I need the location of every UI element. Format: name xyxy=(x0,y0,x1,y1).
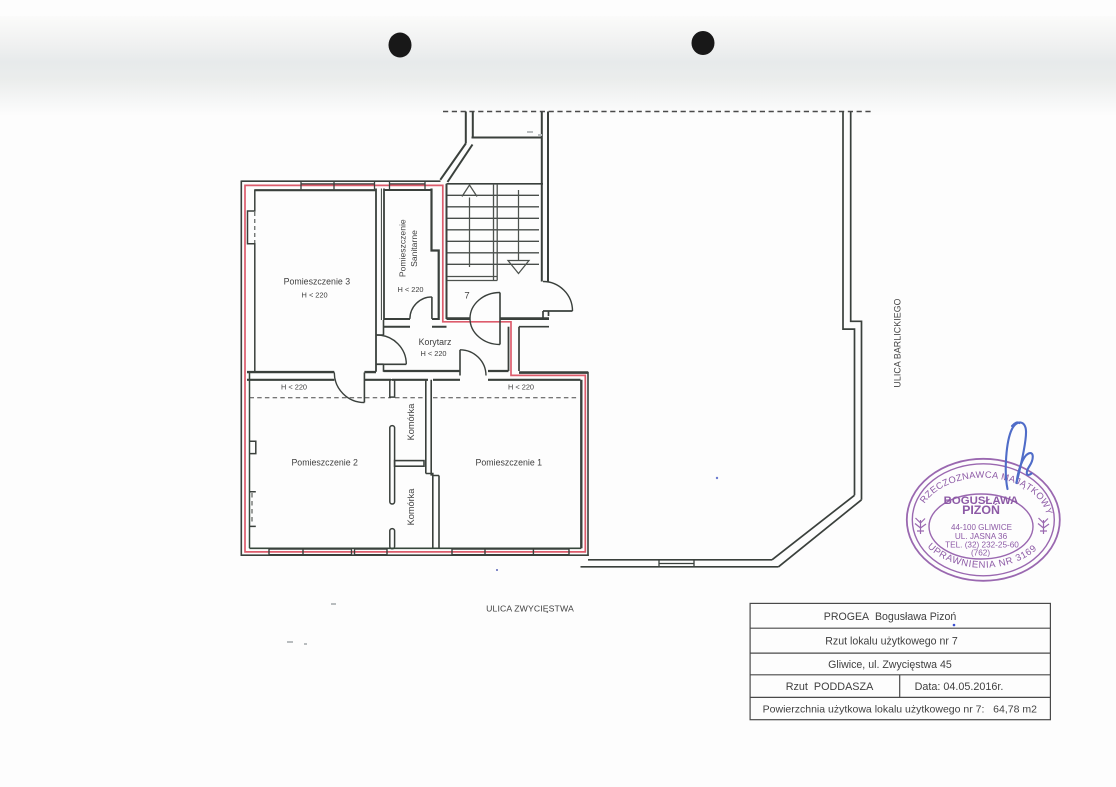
svg-text:Gliwice, ul. Zwycięstwa 45: Gliwice, ul. Zwycięstwa 45 xyxy=(828,659,952,671)
svg-text:Sanitarne: Sanitarne xyxy=(409,230,419,267)
svg-text:Komórka: Komórka xyxy=(406,488,416,526)
svg-text:Pomieszczenie: Pomieszczenie xyxy=(397,219,407,277)
svg-text:ULICA ZWYCIĘSTWA: ULICA ZWYCIĘSTWA xyxy=(486,604,574,614)
svg-text:44-100 GLIWICE: 44-100 GLIWICE xyxy=(951,523,1012,532)
svg-text:Pomieszczenie 3: Pomieszczenie 3 xyxy=(284,276,351,286)
svg-text:7: 7 xyxy=(464,291,469,302)
svg-text:H < 220: H < 220 xyxy=(281,383,307,392)
svg-text:Rzut lokalu użytkowego nr 7: Rzut lokalu użytkowego nr 7 xyxy=(825,636,958,648)
svg-text:Korytarz: Korytarz xyxy=(419,337,452,347)
svg-text:H < 220: H < 220 xyxy=(302,290,328,299)
svg-text:H < 220: H < 220 xyxy=(420,349,446,358)
svg-text:PIZOŃ: PIZOŃ xyxy=(962,502,1000,517)
svg-text:Komórka: Komórka xyxy=(406,403,416,441)
svg-text:ULICA BARLICKIEGO: ULICA BARLICKIEGO xyxy=(892,298,902,387)
svg-text:H < 220: H < 220 xyxy=(397,285,423,294)
svg-text:Rzut PODDASZA: Rzut PODDASZA xyxy=(786,681,874,693)
svg-text:PROGEA Bogusława Pizoń: PROGEA Bogusława Pizoń xyxy=(824,611,957,623)
svg-text:Powierzchnia użytkowa lokalu u: Powierzchnia użytkowa lokalu użytkowego … xyxy=(763,703,1037,715)
svg-text:H < 220: H < 220 xyxy=(508,383,534,392)
svg-text:Data: 04.05.2016r.: Data: 04.05.2016r. xyxy=(915,681,1004,693)
svg-text:Pomieszczenie 2: Pomieszczenie 2 xyxy=(291,457,358,467)
svg-text:Pomieszczenie 1: Pomieszczenie 1 xyxy=(476,457,543,467)
svg-text:(762): (762) xyxy=(971,549,990,558)
